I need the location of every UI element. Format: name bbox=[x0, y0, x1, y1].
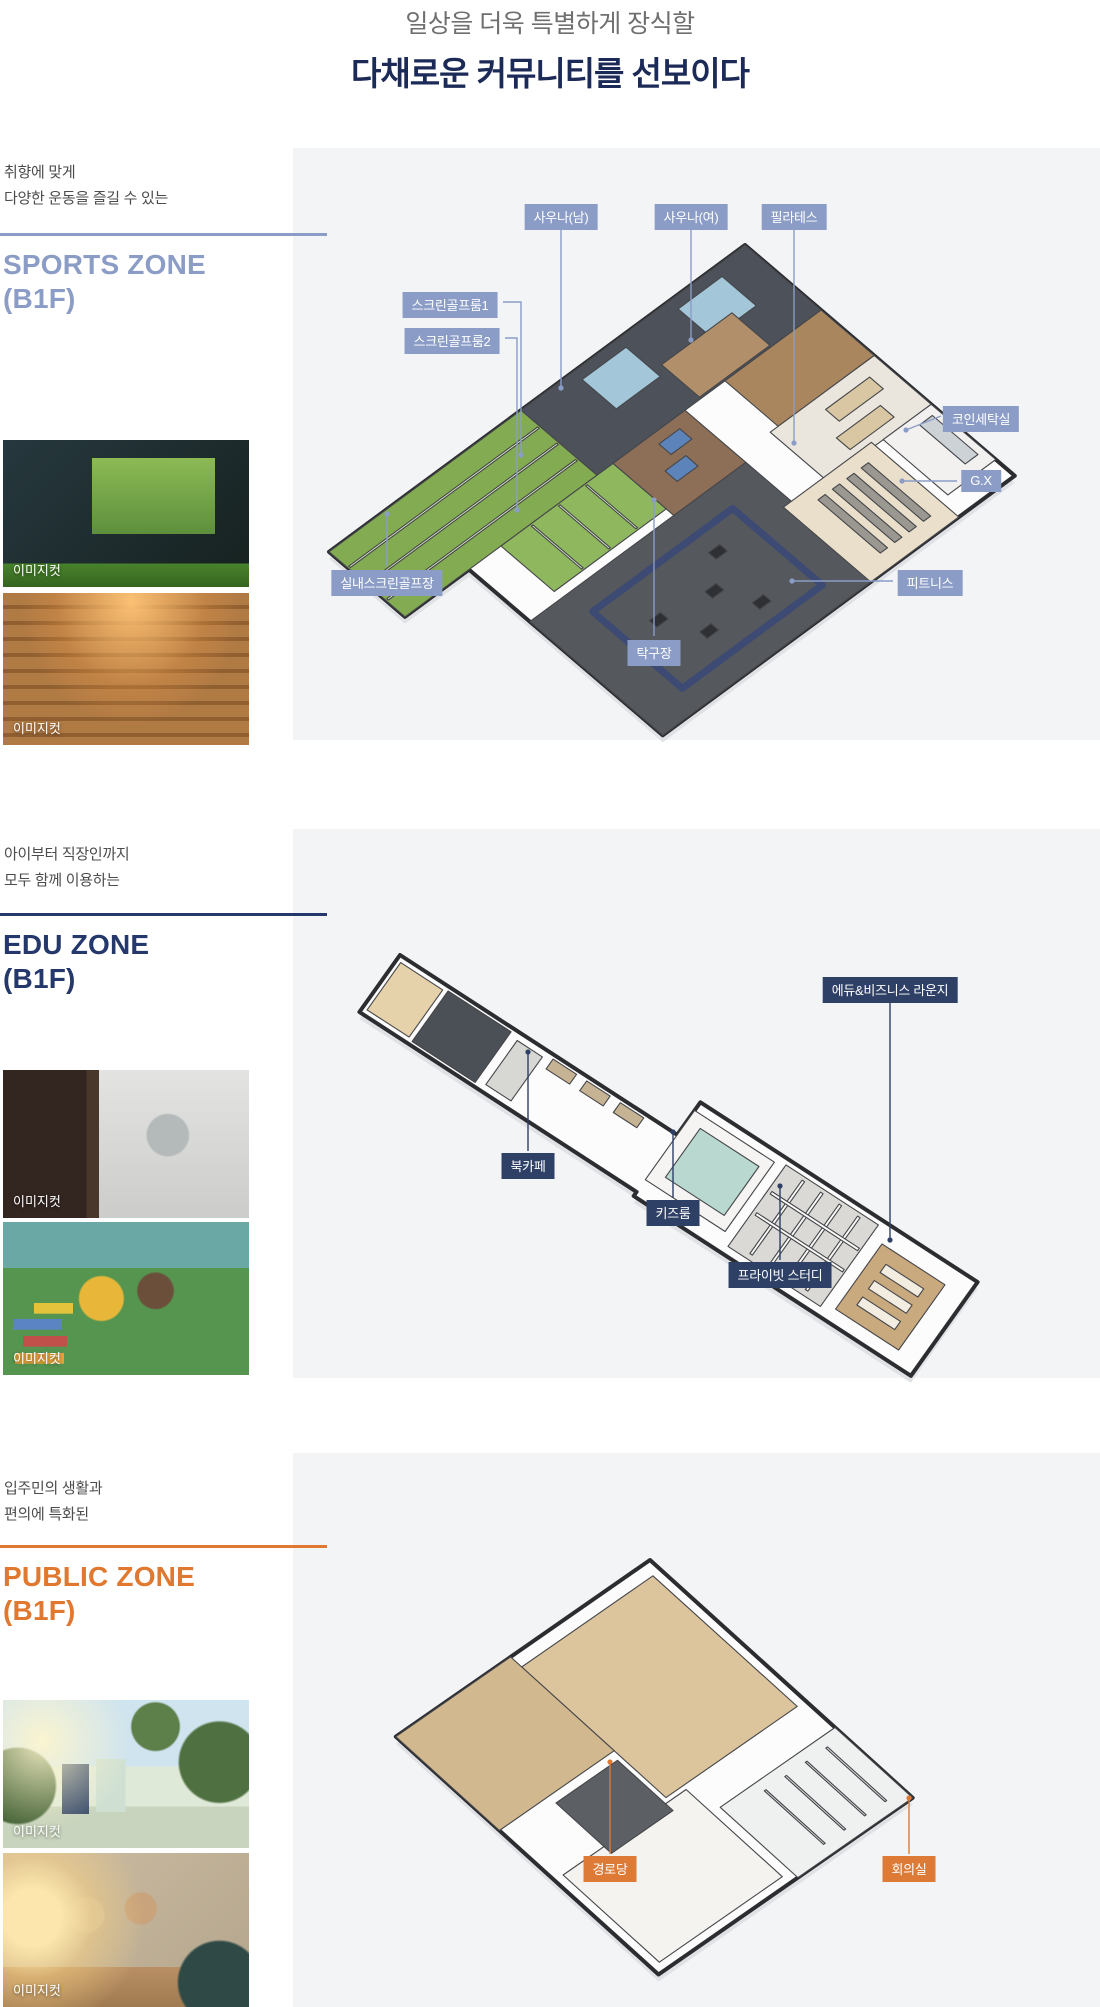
page-title: 다채로운 커뮤니티를 선보이다 bbox=[0, 47, 1100, 95]
plan-label-screen-golf-2: 스크린골프룸2 bbox=[405, 328, 500, 354]
photo-community-cafe: 이미지컷 bbox=[3, 1853, 249, 2007]
public-zone-heading: PUBLIC ZONE (B1F) bbox=[3, 1560, 195, 1628]
edu-description: 아이부터 직장인까지 모두 함께 이용하는 bbox=[4, 842, 129, 894]
sports-zone-heading: SPORTS ZONE (B1F) bbox=[3, 248, 206, 316]
public-plan-panel bbox=[293, 1453, 1100, 2007]
photo-seniors-walk: 이미지컷 bbox=[3, 1700, 249, 1848]
image-caption: 이미지컷 bbox=[13, 718, 61, 737]
edu-desc-line2: 모두 함께 이용하는 bbox=[4, 868, 129, 894]
edu-zone-floor: (B1F) bbox=[3, 962, 149, 996]
photo-screen-golf: 이미지컷 bbox=[3, 440, 249, 587]
plan-label-indoor-golf: 실내스크린골프장 bbox=[331, 570, 442, 596]
photo-kids-room: 이미지컷 bbox=[3, 1222, 249, 1375]
image-caption: 이미지컷 bbox=[13, 1191, 61, 1210]
sports-desc-line1: 취향에 맞게 bbox=[4, 160, 168, 186]
plan-label-sauna-female: 사우나(여) bbox=[655, 204, 728, 230]
image-caption: 이미지컷 bbox=[13, 560, 61, 579]
edu-divider bbox=[0, 913, 327, 916]
image-caption: 이미지컷 bbox=[13, 1348, 61, 1367]
plan-label-table-tennis: 탁구장 bbox=[628, 640, 681, 666]
sports-zone-floor: (B1F) bbox=[3, 282, 206, 316]
edu-zone-name: EDU ZONE bbox=[3, 928, 149, 962]
photo-sauna: 이미지컷 bbox=[3, 593, 249, 745]
sports-zone-name: SPORTS ZONE bbox=[3, 248, 206, 282]
image-caption: 이미지컷 bbox=[13, 1821, 61, 1840]
public-desc-line2: 편의에 특화된 bbox=[4, 1502, 102, 1528]
sports-plan-panel bbox=[293, 148, 1100, 740]
sports-divider bbox=[0, 233, 327, 236]
header-subtitle: 일상을 더욱 특별하게 장식할 bbox=[0, 4, 1100, 40]
public-zone-name: PUBLIC ZONE bbox=[3, 1560, 195, 1594]
public-divider bbox=[0, 1545, 327, 1548]
image-caption: 이미지컷 bbox=[13, 1980, 61, 1999]
plan-label-coin-laundry: 코인세탁실 bbox=[943, 406, 1019, 432]
community-page: 일상을 더욱 특별하게 장식할 다채로운 커뮤니티를 선보이다 취향에 맞게 다… bbox=[0, 0, 1100, 2007]
plan-label-screen-golf-1: 스크린골프룸1 bbox=[403, 292, 498, 318]
photo-book-cafe: 이미지컷 bbox=[3, 1070, 249, 1218]
plan-label-edu-lounge: 에듀&비즈니스 라운지 bbox=[823, 977, 958, 1003]
plan-label-private-study: 프라이빗 스터디 bbox=[729, 1262, 832, 1288]
sports-description: 취향에 맞게 다양한 운동을 즐길 수 있는 bbox=[4, 160, 168, 212]
plan-label-kids-room: 키즈룸 bbox=[647, 1200, 700, 1226]
edu-desc-line1: 아이부터 직장인까지 bbox=[4, 842, 129, 868]
edu-plan-panel bbox=[293, 829, 1100, 1378]
plan-label-meeting-room: 회의실 bbox=[883, 1856, 936, 1882]
plan-label-fitness: 피트니스 bbox=[898, 570, 963, 596]
public-desc-line1: 입주민의 생활과 bbox=[4, 1476, 102, 1502]
sports-desc-line2: 다양한 운동을 즐길 수 있는 bbox=[4, 186, 168, 212]
plan-label-sauna-male: 사우나(남) bbox=[525, 204, 598, 230]
plan-label-book-cafe: 북카페 bbox=[502, 1153, 555, 1179]
plan-label-pilates: 필라테스 bbox=[762, 204, 827, 230]
page-header: 일상을 더욱 특별하게 장식할 다채로운 커뮤니티를 선보이다 bbox=[0, 4, 1100, 95]
edu-zone-heading: EDU ZONE (B1F) bbox=[3, 928, 149, 996]
public-zone-floor: (B1F) bbox=[3, 1594, 195, 1628]
plan-label-gx: G.X bbox=[961, 470, 1001, 492]
plan-label-senior-center: 경로당 bbox=[584, 1856, 637, 1882]
public-description: 입주민의 생활과 편의에 특화된 bbox=[4, 1476, 102, 1528]
